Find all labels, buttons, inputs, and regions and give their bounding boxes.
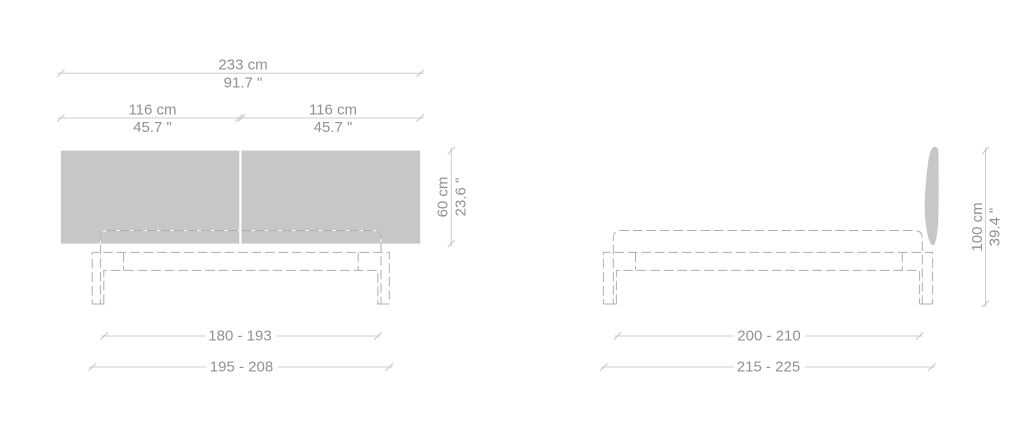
svg-text:100 cm: 100 cm xyxy=(969,202,986,251)
svg-text:233 cm: 233 cm xyxy=(218,57,267,74)
svg-text:180 - 193: 180 - 193 xyxy=(208,328,271,345)
svg-text:215 - 225: 215 - 225 xyxy=(737,359,800,376)
svg-text:200 - 210: 200 - 210 xyxy=(737,328,800,345)
svg-text:60 cm: 60 cm xyxy=(435,177,452,218)
svg-text:116 cm: 116 cm xyxy=(128,101,176,118)
svg-text:195 - 208: 195 - 208 xyxy=(210,359,273,376)
svg-text:45.7 ": 45.7 " xyxy=(133,119,172,136)
svg-text:116 cm: 116 cm xyxy=(309,101,357,118)
svg-text:45.7 ": 45.7 " xyxy=(314,119,353,136)
svg-text:23.6 ": 23.6 " xyxy=(452,178,469,217)
svg-text:39.4 ": 39.4 " xyxy=(987,208,1004,247)
svg-text:91.7 ": 91.7 " xyxy=(224,75,263,92)
